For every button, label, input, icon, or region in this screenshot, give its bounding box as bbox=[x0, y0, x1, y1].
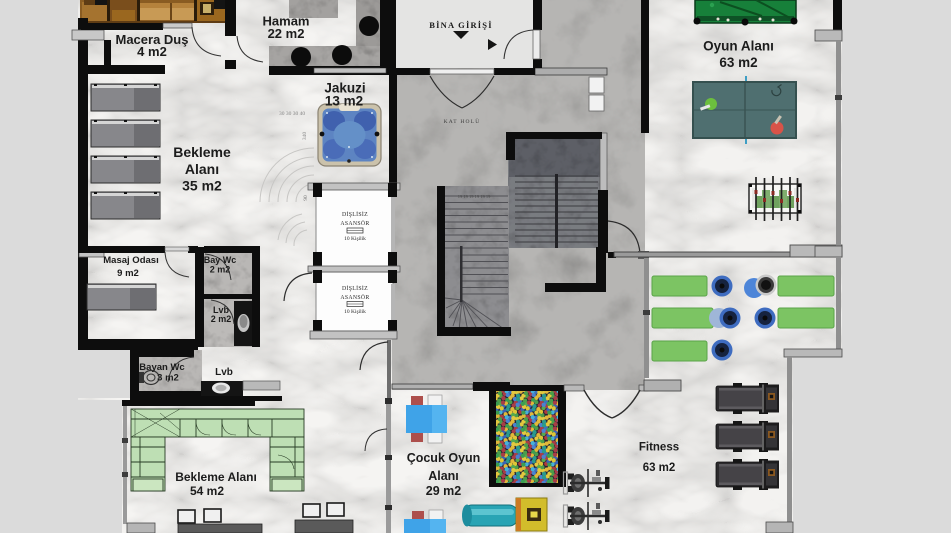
svg-text:30 30 30 40: 30 30 30 40 bbox=[279, 111, 305, 117]
svg-text:Alanı: Alanı bbox=[428, 469, 459, 483]
svg-text:ASANSÖR: ASANSÖR bbox=[340, 294, 369, 301]
svg-text:Alanı: Alanı bbox=[185, 161, 219, 177]
svg-text:3 m2: 3 m2 bbox=[157, 373, 179, 384]
svg-text:Bekleme: Bekleme bbox=[173, 144, 231, 160]
svg-text:22 m2: 22 m2 bbox=[268, 26, 305, 41]
svg-text:Bekleme Alanı: Bekleme Alanı bbox=[175, 470, 257, 484]
svg-text:19 19 19 19 19 19: 19 19 19 19 19 19 bbox=[458, 194, 491, 199]
svg-text:Bay Wc: Bay Wc bbox=[204, 255, 237, 265]
svg-text:10 Kişilik: 10 Kişilik bbox=[344, 309, 366, 315]
svg-text:340: 340 bbox=[302, 132, 308, 141]
svg-text:Fitness: Fitness bbox=[639, 442, 679, 454]
svg-text:29 m2: 29 m2 bbox=[426, 484, 461, 498]
svg-text:Çocuk Oyun: Çocuk Oyun bbox=[407, 451, 481, 465]
svg-text:35 m2: 35 m2 bbox=[182, 178, 222, 194]
svg-text:90: 90 bbox=[303, 195, 309, 201]
svg-text:10 Kişilik: 10 Kişilik bbox=[344, 236, 366, 242]
svg-text:9 m2: 9 m2 bbox=[117, 268, 139, 279]
svg-text:BİNA GİRİŞİ: BİNA GİRİŞİ bbox=[429, 20, 493, 30]
svg-text:KAT HOLÜ: KAT HOLÜ bbox=[444, 118, 481, 125]
svg-text:Masaj Odası: Masaj Odası bbox=[103, 255, 158, 266]
svg-text:ASANSÖR: ASANSÖR bbox=[340, 220, 369, 227]
svg-text:DİŞLİSİZ: DİŞLİSİZ bbox=[342, 211, 368, 218]
svg-text:Bayan Wc: Bayan Wc bbox=[139, 362, 184, 373]
svg-text:DİŞLİSİZ: DİŞLİSİZ bbox=[342, 285, 368, 292]
svg-text:Oyun Alanı: Oyun Alanı bbox=[703, 39, 774, 54]
svg-text:2 m2: 2 m2 bbox=[211, 314, 232, 324]
svg-text:4 m2: 4 m2 bbox=[137, 44, 167, 59]
svg-text:13 m2: 13 m2 bbox=[325, 94, 363, 109]
svg-text:Lvb: Lvb bbox=[215, 367, 233, 378]
svg-text:2 m2: 2 m2 bbox=[210, 265, 231, 275]
svg-text:63 m2: 63 m2 bbox=[643, 462, 676, 474]
svg-text:63 m2: 63 m2 bbox=[719, 55, 757, 70]
svg-text:54 m2: 54 m2 bbox=[190, 484, 224, 498]
